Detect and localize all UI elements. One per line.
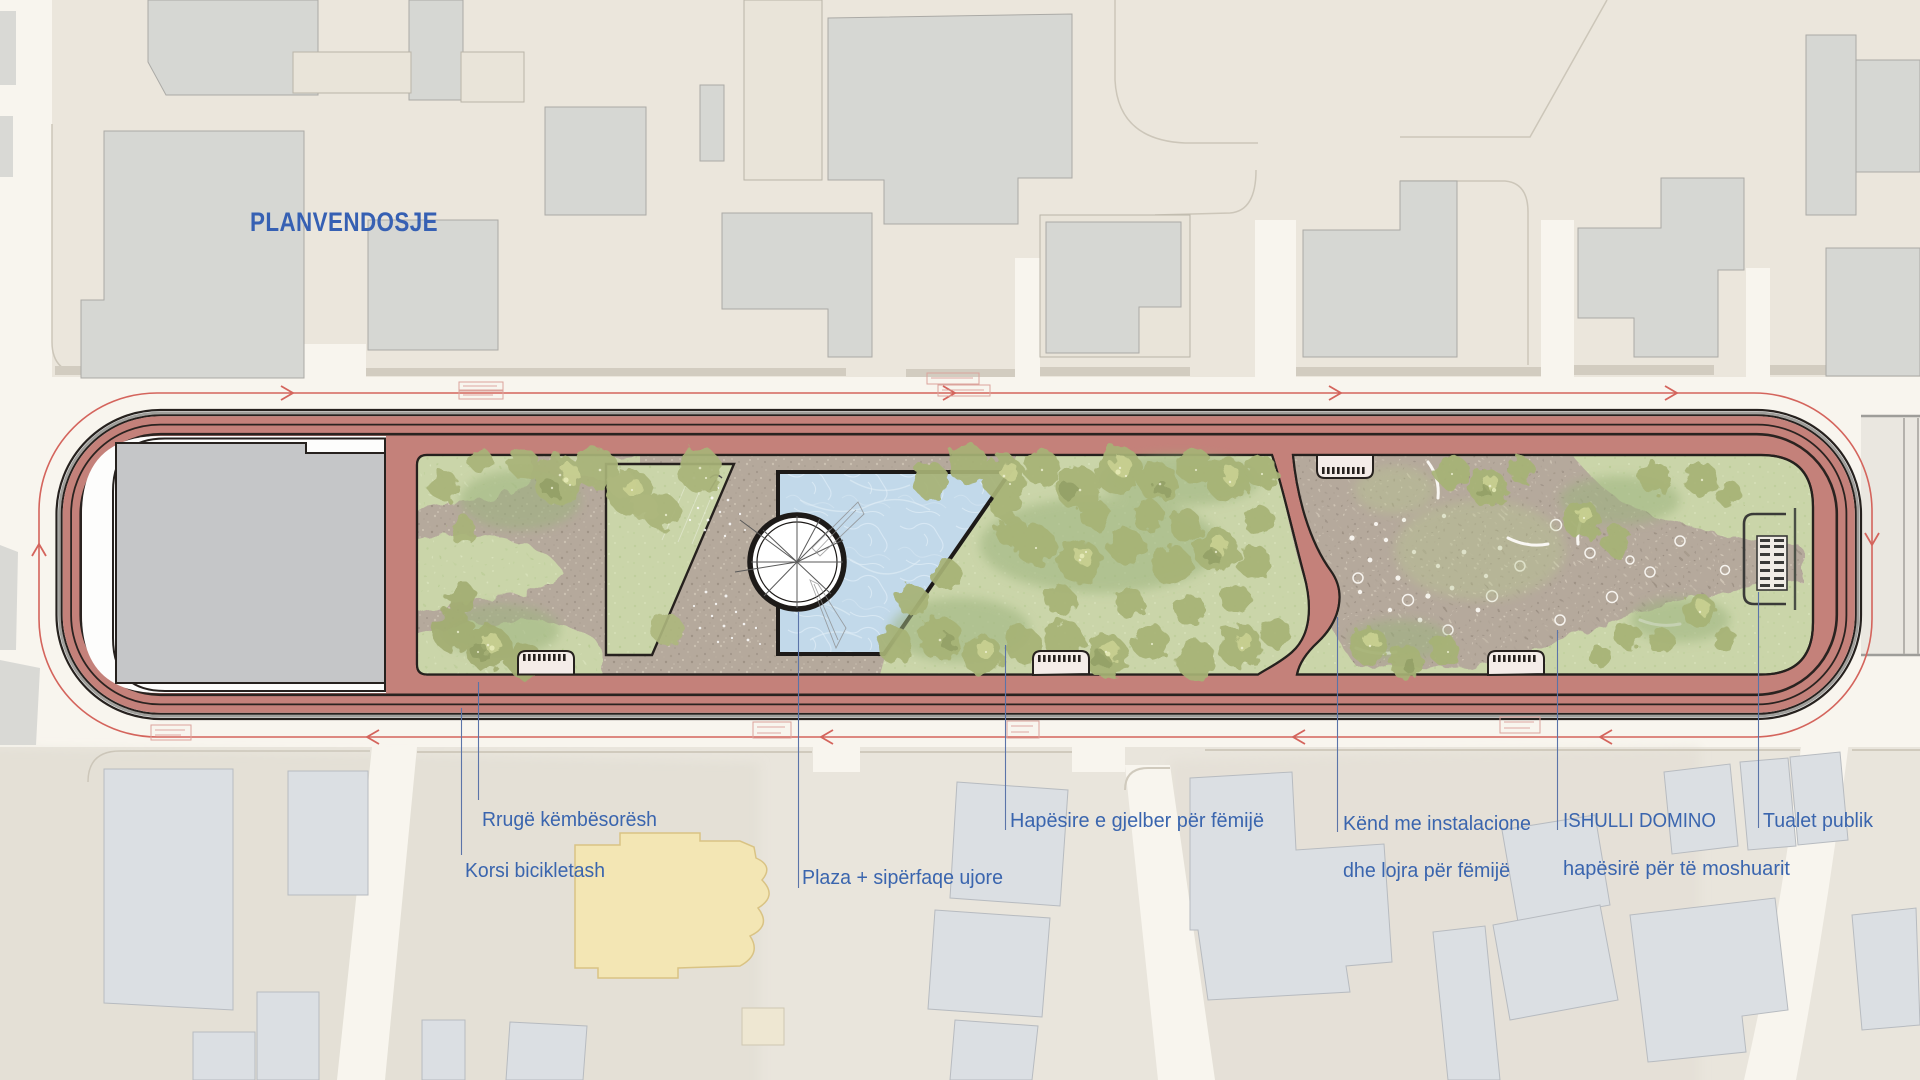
svg-text:Hapësire e gjelber për fëmijë: Hapësire e gjelber për fëmijë [1010,810,1264,832]
svg-text:hapësirë për të moshuarit: hapësirë për të moshuarit [1563,858,1790,880]
svg-text:Tualet publik: Tualet publik [1763,810,1874,832]
svg-text:dhe lojra për fëmijë: dhe lojra për fëmijë [1343,860,1510,882]
svg-text:PLANVENDOSJE: PLANVENDOSJE [250,207,438,237]
svg-text:Korsi bicikletash: Korsi bicikletash [465,860,605,882]
svg-text:Plaza + sipërfaqe ujore: Plaza + sipërfaqe ujore [802,867,1003,889]
svg-text:ISHULLI DOMINO: ISHULLI DOMINO [1563,810,1716,832]
svg-text:Kënd me instalacione: Kënd me instalacione [1343,813,1531,835]
svg-text:Rrugë këmbësorësh: Rrugë këmbësorësh [482,809,657,831]
